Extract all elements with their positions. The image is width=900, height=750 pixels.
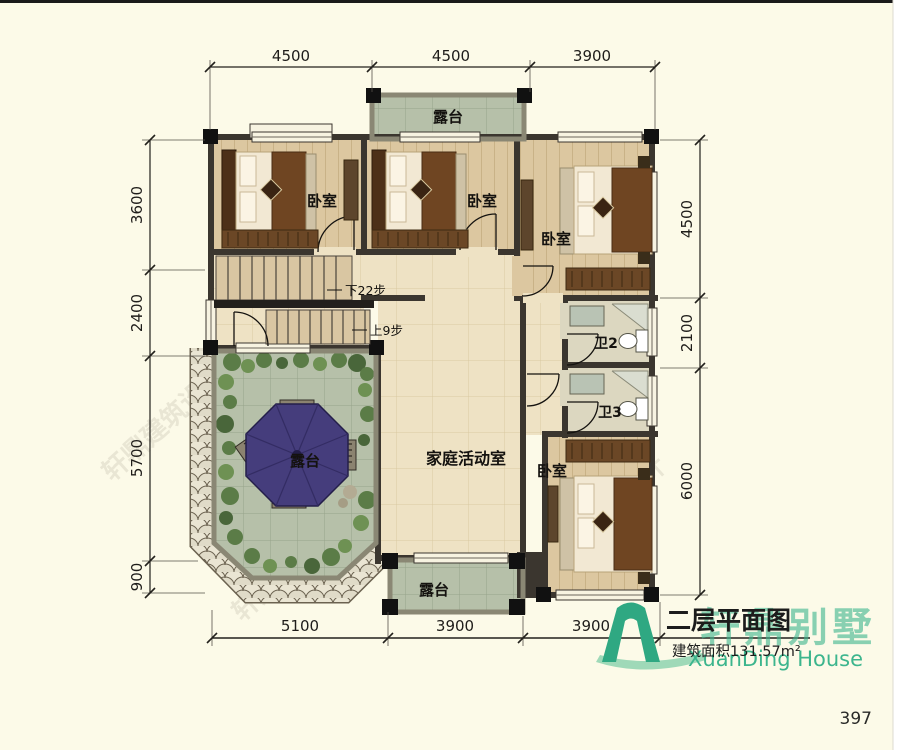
room-label-bedroom-topleft: 卧室 <box>307 192 337 210</box>
cabinet-icon <box>548 486 558 542</box>
wardrobe-icon <box>566 440 650 462</box>
cabinet-icon <box>344 160 358 220</box>
page-right-margin <box>893 0 900 750</box>
toilet-icon <box>636 330 648 352</box>
dim-bottom-3: 3900 <box>572 617 610 635</box>
room-label-bath2: 卫2 <box>594 336 618 352</box>
dim-bottom-2: 3900 <box>436 617 474 635</box>
room-label-bedroom-bottomright: 卧室 <box>537 462 567 480</box>
rock <box>343 485 357 499</box>
bed-icon <box>222 150 316 234</box>
dim-right-2: 2100 <box>678 314 696 352</box>
room-label-family-room: 家庭活动室 <box>426 449 506 468</box>
stairs-up-label: 上9步 <box>370 323 403 338</box>
floor-hallway <box>364 252 517 298</box>
dim-left-3: 5700 <box>128 439 146 477</box>
toilet-icon <box>636 398 648 420</box>
plan-page: 轩鼎建筑设计 轩鼎建筑设计 轩鼎建筑设计 轩鼎建筑设计 轩鼎建筑设计 轩鼎建筑设… <box>0 0 900 750</box>
wardrobe-icon <box>222 230 318 248</box>
room-label-terrace-left: 露台 <box>290 452 320 470</box>
dim-top-2: 4500 <box>432 47 470 65</box>
dim-right-1: 4500 <box>678 200 696 238</box>
bed-icon <box>560 468 652 584</box>
stair-handrail <box>214 300 374 308</box>
floor-terrace-bottom <box>390 560 523 612</box>
dim-left-4: 900 <box>128 563 146 592</box>
wardrobe-icon <box>372 230 468 248</box>
room-label-bath3: 卫3 <box>598 405 622 421</box>
room-label-bedroom-topright: 卧室 <box>541 230 571 248</box>
cabinet-icon <box>521 180 533 250</box>
bed-icon <box>560 156 652 264</box>
dim-left-2: 2400 <box>128 294 146 332</box>
room-label-terrace-bottom: 露台 <box>419 581 449 599</box>
dim-bottom-1: 5100 <box>281 617 319 635</box>
page-number: 397 <box>840 709 872 729</box>
plan-title: 二层平面图 <box>666 606 791 635</box>
room-label-bedroom-topmiddle: 卧室 <box>467 192 497 210</box>
bed-icon <box>372 150 466 234</box>
rock <box>338 498 348 508</box>
dim-left-1: 3600 <box>128 186 146 224</box>
dim-right-3: 6000 <box>678 462 696 500</box>
page-top-border <box>0 0 893 3</box>
stairs-down-label: 下22步 <box>345 283 386 298</box>
wardrobe-icon <box>566 268 650 290</box>
floor-plan-drawing: 轩鼎建筑设计 轩鼎建筑设计 轩鼎建筑设计 轩鼎建筑设计 轩鼎建筑设计 轩鼎建筑设… <box>0 0 900 750</box>
building-area: 建筑面积131.57m² <box>672 643 801 660</box>
dim-top-3: 3900 <box>573 47 611 65</box>
room-label-terrace-top: 露台 <box>433 108 463 126</box>
dim-top-1: 4500 <box>272 47 310 65</box>
